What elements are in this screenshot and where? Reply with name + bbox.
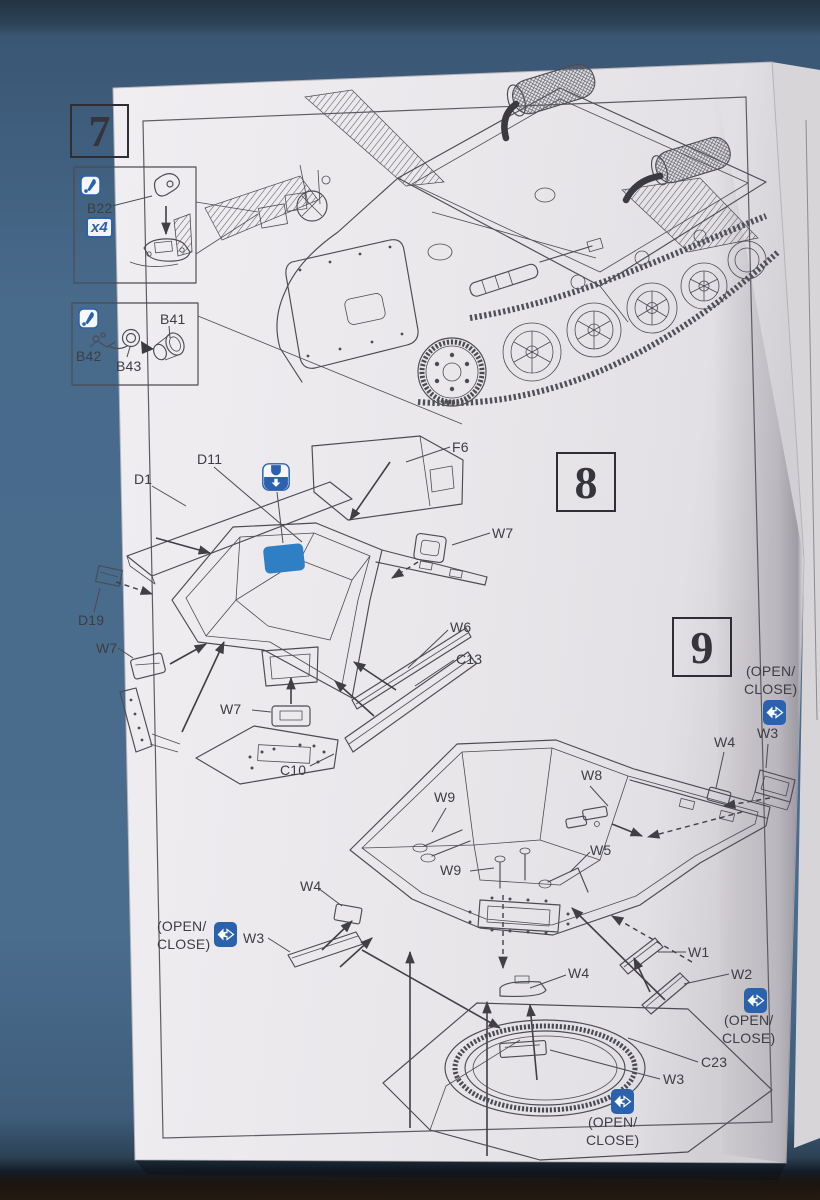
part-label-w4: W4 — [568, 965, 589, 983]
open-close-note: (OPEN/CLOSE) — [586, 1114, 639, 1149]
part-label-d11: D11 — [197, 451, 222, 469]
part-label-c10: C10 — [280, 762, 306, 780]
open-close-line1: (OPEN/ — [724, 1012, 773, 1028]
step7-illustration — [72, 61, 778, 424]
part-label-w3: W3 — [757, 725, 778, 743]
part-label-w4: W4 — [714, 734, 735, 752]
step9-small-parts — [268, 744, 795, 1156]
part-label-b43: B43 — [116, 358, 142, 376]
attach-position-icon — [262, 463, 290, 496]
part-label-b41: B41 — [160, 311, 186, 329]
open-close-line2: CLOSE) — [744, 681, 797, 697]
open-close-line1: (OPEN/ — [157, 918, 206, 934]
quantity-x4-badge: x4 — [86, 217, 113, 238]
step-number-9: 9 — [691, 621, 714, 674]
open-close-note: (OPEN/CLOSE) — [157, 918, 210, 953]
apply-cement-icon — [80, 175, 101, 201]
open-close-line1: (OPEN/ — [588, 1114, 637, 1130]
part-label-w2: W2 — [731, 966, 752, 984]
part-label-d1: D1 — [134, 471, 152, 489]
open-close-note: (OPEN/CLOSE) — [744, 663, 797, 698]
part-label-w1: W1 — [688, 944, 709, 962]
open-close-note: (OPEN/CLOSE) — [722, 1012, 775, 1047]
part-label-w7: W7 — [492, 525, 513, 543]
part-label-c13: C13 — [456, 651, 482, 669]
part-label-w3: W3 — [243, 930, 264, 948]
step-number-box-7: 7 — [70, 104, 129, 158]
part-label-b22: B22 — [87, 200, 113, 218]
decal-position-highlight — [263, 543, 306, 574]
step7-tank-hull — [205, 61, 778, 406]
open-close-line2: CLOSE) — [586, 1132, 639, 1148]
turret-ring — [383, 1003, 772, 1160]
part-label-w7: W7 — [220, 701, 241, 719]
part-label-w3: W3 — [663, 1071, 684, 1089]
apply-cement-icon — [78, 308, 99, 334]
step9-exploded-diagram — [268, 740, 795, 1160]
part-label-w4: W4 — [300, 878, 321, 896]
step-number-7: 7 — [89, 106, 111, 157]
part-label-d19: D19 — [78, 612, 104, 630]
step8-exploded-diagram — [94, 436, 490, 784]
step-number-8: 8 — [575, 456, 598, 509]
part-label-w5: W5 — [590, 842, 611, 860]
part-label-w8: W8 — [581, 767, 602, 785]
part-label-w9: W9 — [434, 789, 455, 807]
photographed-instruction-sheet: .ln{stroke:#4b4b52;fill:none;stroke-widt… — [0, 0, 820, 1200]
open-close-line2: CLOSE) — [157, 936, 210, 952]
step-number-box-8: 8 — [556, 452, 616, 512]
part-label-c23: C23 — [701, 1054, 727, 1072]
open-close-line2: CLOSE) — [722, 1030, 775, 1046]
open-close-option-icon — [213, 921, 238, 953]
instruction-line-art: .ln{stroke:#4b4b52;fill:none;stroke-widt… — [0, 0, 820, 1200]
part-label-w6: W6 — [450, 619, 471, 637]
part-label-f6: F6 — [452, 439, 469, 457]
step-number-box-9: 9 — [672, 617, 732, 677]
open-close-line1: (OPEN/ — [746, 663, 795, 679]
road-wheels — [418, 216, 778, 406]
part-label-w7: W7 — [96, 640, 117, 658]
part-label-w9: W9 — [440, 862, 461, 880]
part-label-b42: B42 — [76, 348, 102, 366]
